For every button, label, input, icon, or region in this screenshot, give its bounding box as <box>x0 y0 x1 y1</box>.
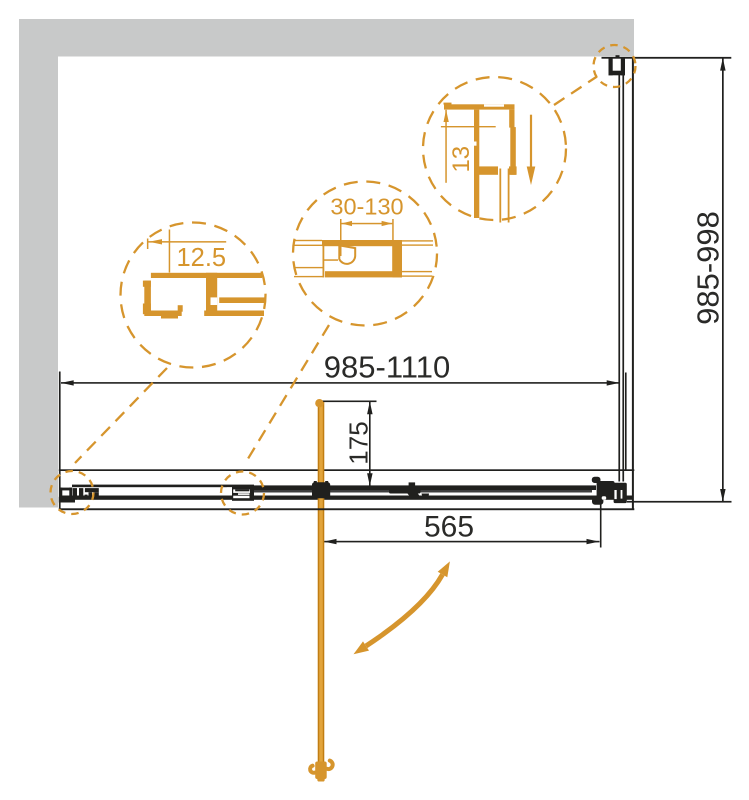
svg-text:12.5: 12.5 <box>176 244 226 272</box>
svg-text:30-130: 30-130 <box>330 194 403 220</box>
svg-text:175: 175 <box>343 421 373 464</box>
svg-text:985-998: 985-998 <box>690 211 725 325</box>
svg-text:985-1110: 985-1110 <box>324 350 450 385</box>
svg-text:565: 565 <box>424 511 474 544</box>
svg-text:13: 13 <box>448 146 475 173</box>
